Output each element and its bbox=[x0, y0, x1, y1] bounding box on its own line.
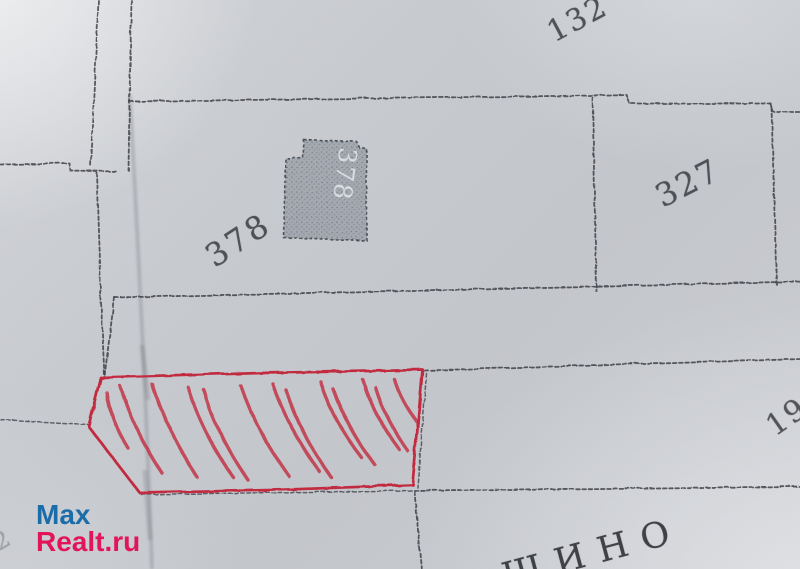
watermark-line2: Realt.ru bbox=[36, 528, 140, 555]
watermark: Max Realt.ru bbox=[36, 501, 140, 555]
plot-plan-photo: 132 378 378 327 19 ЩИНО 2 Max Realt.ru bbox=[0, 0, 800, 569]
plan-drawing bbox=[0, 0, 800, 569]
watermark-line1: Max bbox=[36, 501, 140, 528]
